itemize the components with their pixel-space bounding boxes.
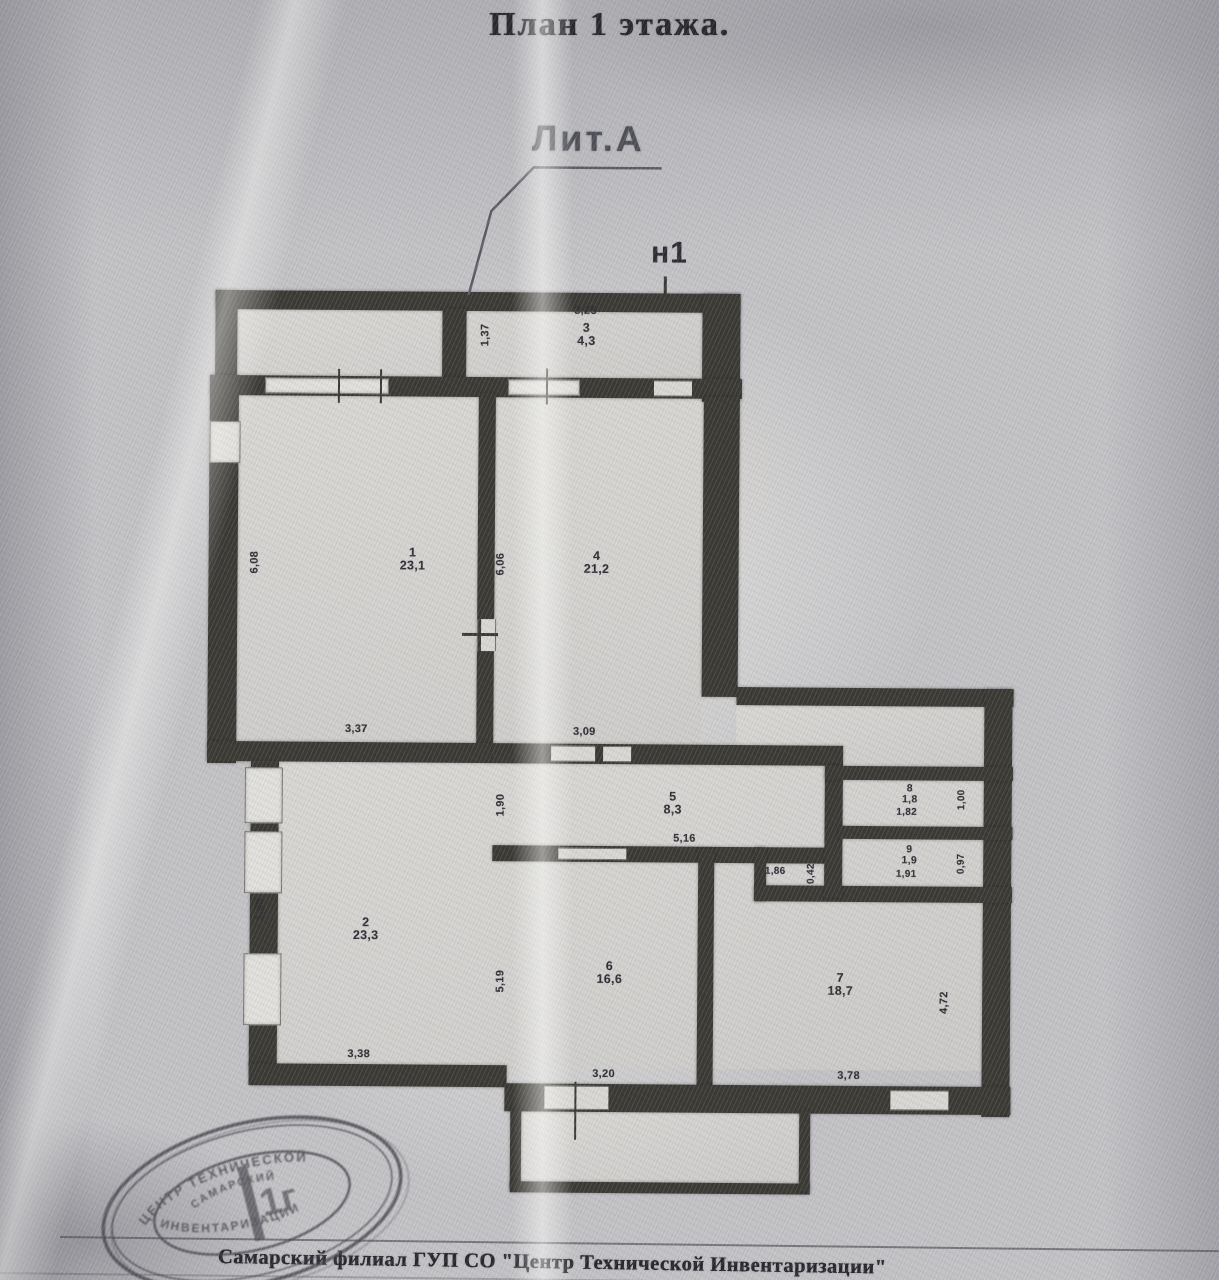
page-title: План 1 этажа. bbox=[0, 6, 1219, 44]
scanned-floorplan-page: План 1 этажа. Лит.А н1 bbox=[0, 0, 1219, 1280]
floor-plan: Лит.А н1 bbox=[0, 0, 1219, 1280]
liter-leader-line bbox=[0, 0, 1219, 1280]
